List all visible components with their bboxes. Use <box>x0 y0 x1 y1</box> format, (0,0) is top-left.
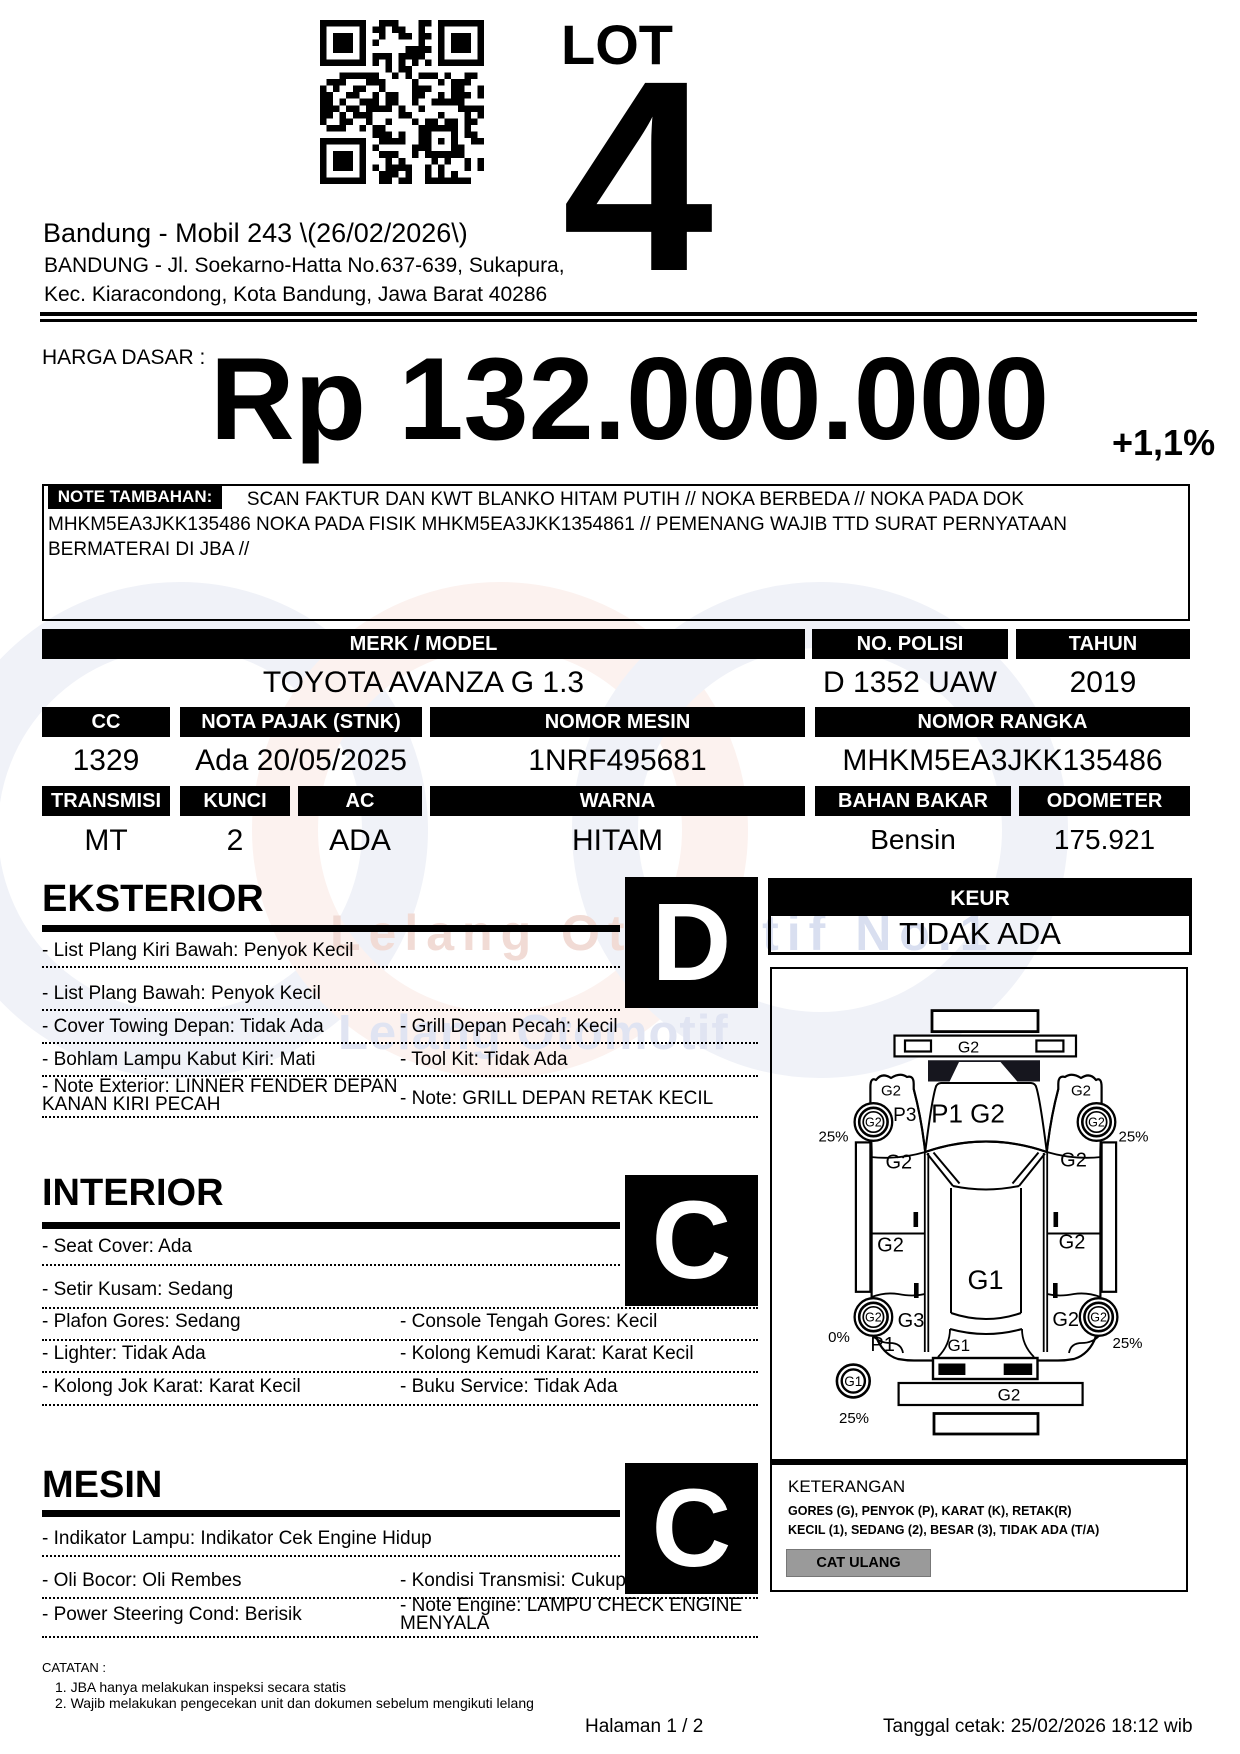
svg-text:G2: G2 <box>998 1386 1021 1405</box>
svg-text:G3: G3 <box>898 1310 925 1332</box>
svg-text:G2: G2 <box>885 1152 912 1174</box>
svg-text:G2: G2 <box>1060 1150 1087 1172</box>
svg-text:G1: G1 <box>844 1374 862 1389</box>
svg-text:G2: G2 <box>1052 1309 1079 1331</box>
svg-text:G1: G1 <box>947 1336 970 1355</box>
svg-text:G2: G2 <box>958 1040 979 1057</box>
svg-text:25%: 25% <box>1118 1129 1148 1146</box>
svg-text:G2: G2 <box>1088 1116 1105 1130</box>
svg-text:P1 G2: P1 G2 <box>931 1099 1005 1129</box>
svg-text:P1: P1 <box>870 1334 894 1356</box>
svg-text:G2: G2 <box>877 1235 904 1257</box>
svg-text:0%: 0% <box>828 1329 850 1346</box>
svg-text:25%: 25% <box>839 1410 869 1427</box>
svg-text:25%: 25% <box>1112 1335 1142 1352</box>
svg-text:G1: G1 <box>967 1265 1003 1295</box>
svg-text:G2: G2 <box>1059 1232 1086 1254</box>
svg-text:25%: 25% <box>818 1129 848 1146</box>
svg-text:G2: G2 <box>1071 1083 1091 1100</box>
svg-text:G2: G2 <box>1090 1311 1107 1325</box>
svg-text:G2: G2 <box>881 1083 901 1100</box>
svg-text:G2: G2 <box>865 1311 882 1325</box>
svg-text:P3: P3 <box>893 1105 916 1126</box>
svg-text:G2: G2 <box>865 1116 882 1130</box>
